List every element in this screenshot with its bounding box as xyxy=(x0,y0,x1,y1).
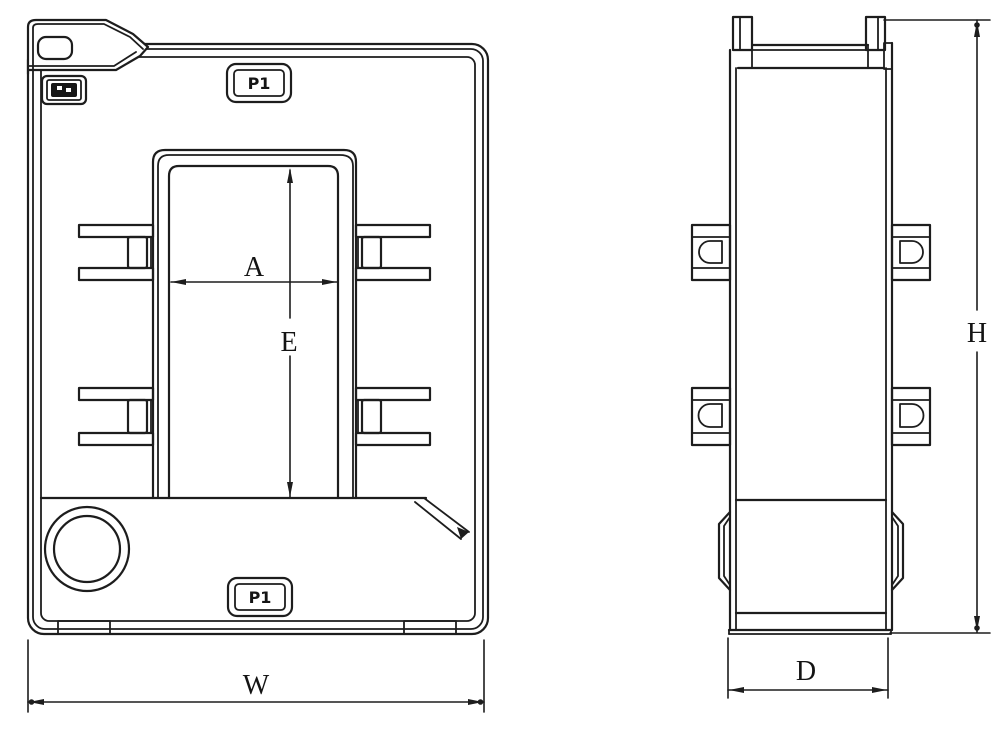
side-top-tab-left xyxy=(733,17,752,50)
dimension-w-label: W xyxy=(243,670,270,701)
mounting-bracket-side-top-right xyxy=(892,225,930,280)
dimension-h-label: H xyxy=(967,318,987,349)
top-left-tab xyxy=(28,20,148,74)
mounting-bracket-side-top-left xyxy=(692,225,730,280)
p1-badge-bottom-label: P1 xyxy=(249,588,272,607)
center-window-opening xyxy=(153,150,356,498)
bracket-slot xyxy=(900,404,924,427)
p1-badge-top-label: P1 xyxy=(248,74,271,93)
dimension-d-label: D xyxy=(796,656,816,687)
bracket-slot xyxy=(900,241,923,263)
base-separator-line xyxy=(41,498,469,539)
side-view: H D xyxy=(692,17,990,698)
bracket-slot xyxy=(362,400,381,433)
dimension-e-label: E xyxy=(280,327,297,358)
drawing-canvas: P1 P1 A E xyxy=(0,0,1000,748)
p1-badge-bottom: P1 xyxy=(228,578,292,616)
foot-notch-right xyxy=(404,621,456,634)
front-body-outline xyxy=(28,44,488,634)
side-body-walls xyxy=(730,43,892,630)
bracket-slot xyxy=(699,241,722,263)
dimension-w: W xyxy=(28,640,484,712)
mounting-bracket-side-bottom-left xyxy=(692,388,730,445)
dimension-a-label: A xyxy=(244,252,265,283)
front-view: P1 P1 A E xyxy=(28,20,488,712)
side-base-section xyxy=(719,500,903,634)
dimension-a: A xyxy=(171,252,337,285)
bracket-slot xyxy=(699,404,723,427)
terminal-circle xyxy=(45,507,129,591)
dimension-d: D xyxy=(728,638,888,698)
mounting-bracket-front-top-left xyxy=(79,225,153,280)
mounting-bracket-side-bottom-right xyxy=(892,388,930,445)
dimension-e: E xyxy=(280,168,297,497)
side-top-bar xyxy=(738,45,884,68)
bracket-slot xyxy=(128,400,147,433)
mounting-bracket-front-top-right xyxy=(356,225,430,280)
bracket-slot xyxy=(128,237,147,268)
p1-badge-top: P1 xyxy=(227,64,291,102)
bracket-slot xyxy=(362,237,381,268)
dimension-h: H xyxy=(884,20,990,633)
filled-mark-emblem-icon xyxy=(42,76,86,104)
mounting-bracket-front-bottom-right xyxy=(356,388,430,445)
engineering-drawing: P1 P1 A E xyxy=(0,0,1000,748)
foot-notch-left xyxy=(58,621,110,634)
side-top-tab-right xyxy=(866,17,892,69)
mounting-bracket-front-bottom-left xyxy=(79,388,153,445)
